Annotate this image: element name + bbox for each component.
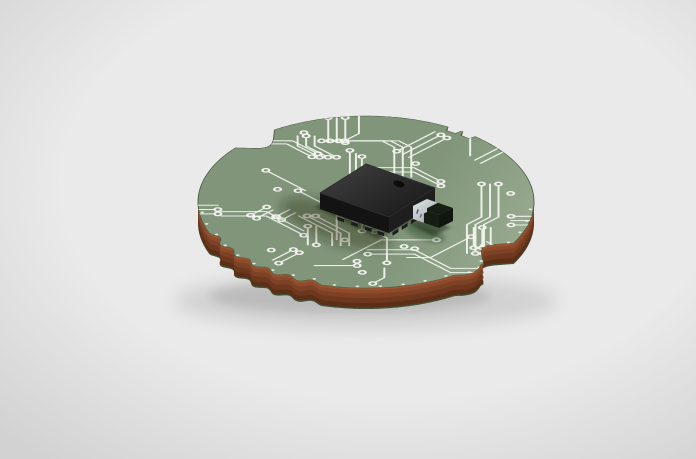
product-render-canvas bbox=[0, 0, 696, 459]
render-stage bbox=[0, 0, 696, 459]
